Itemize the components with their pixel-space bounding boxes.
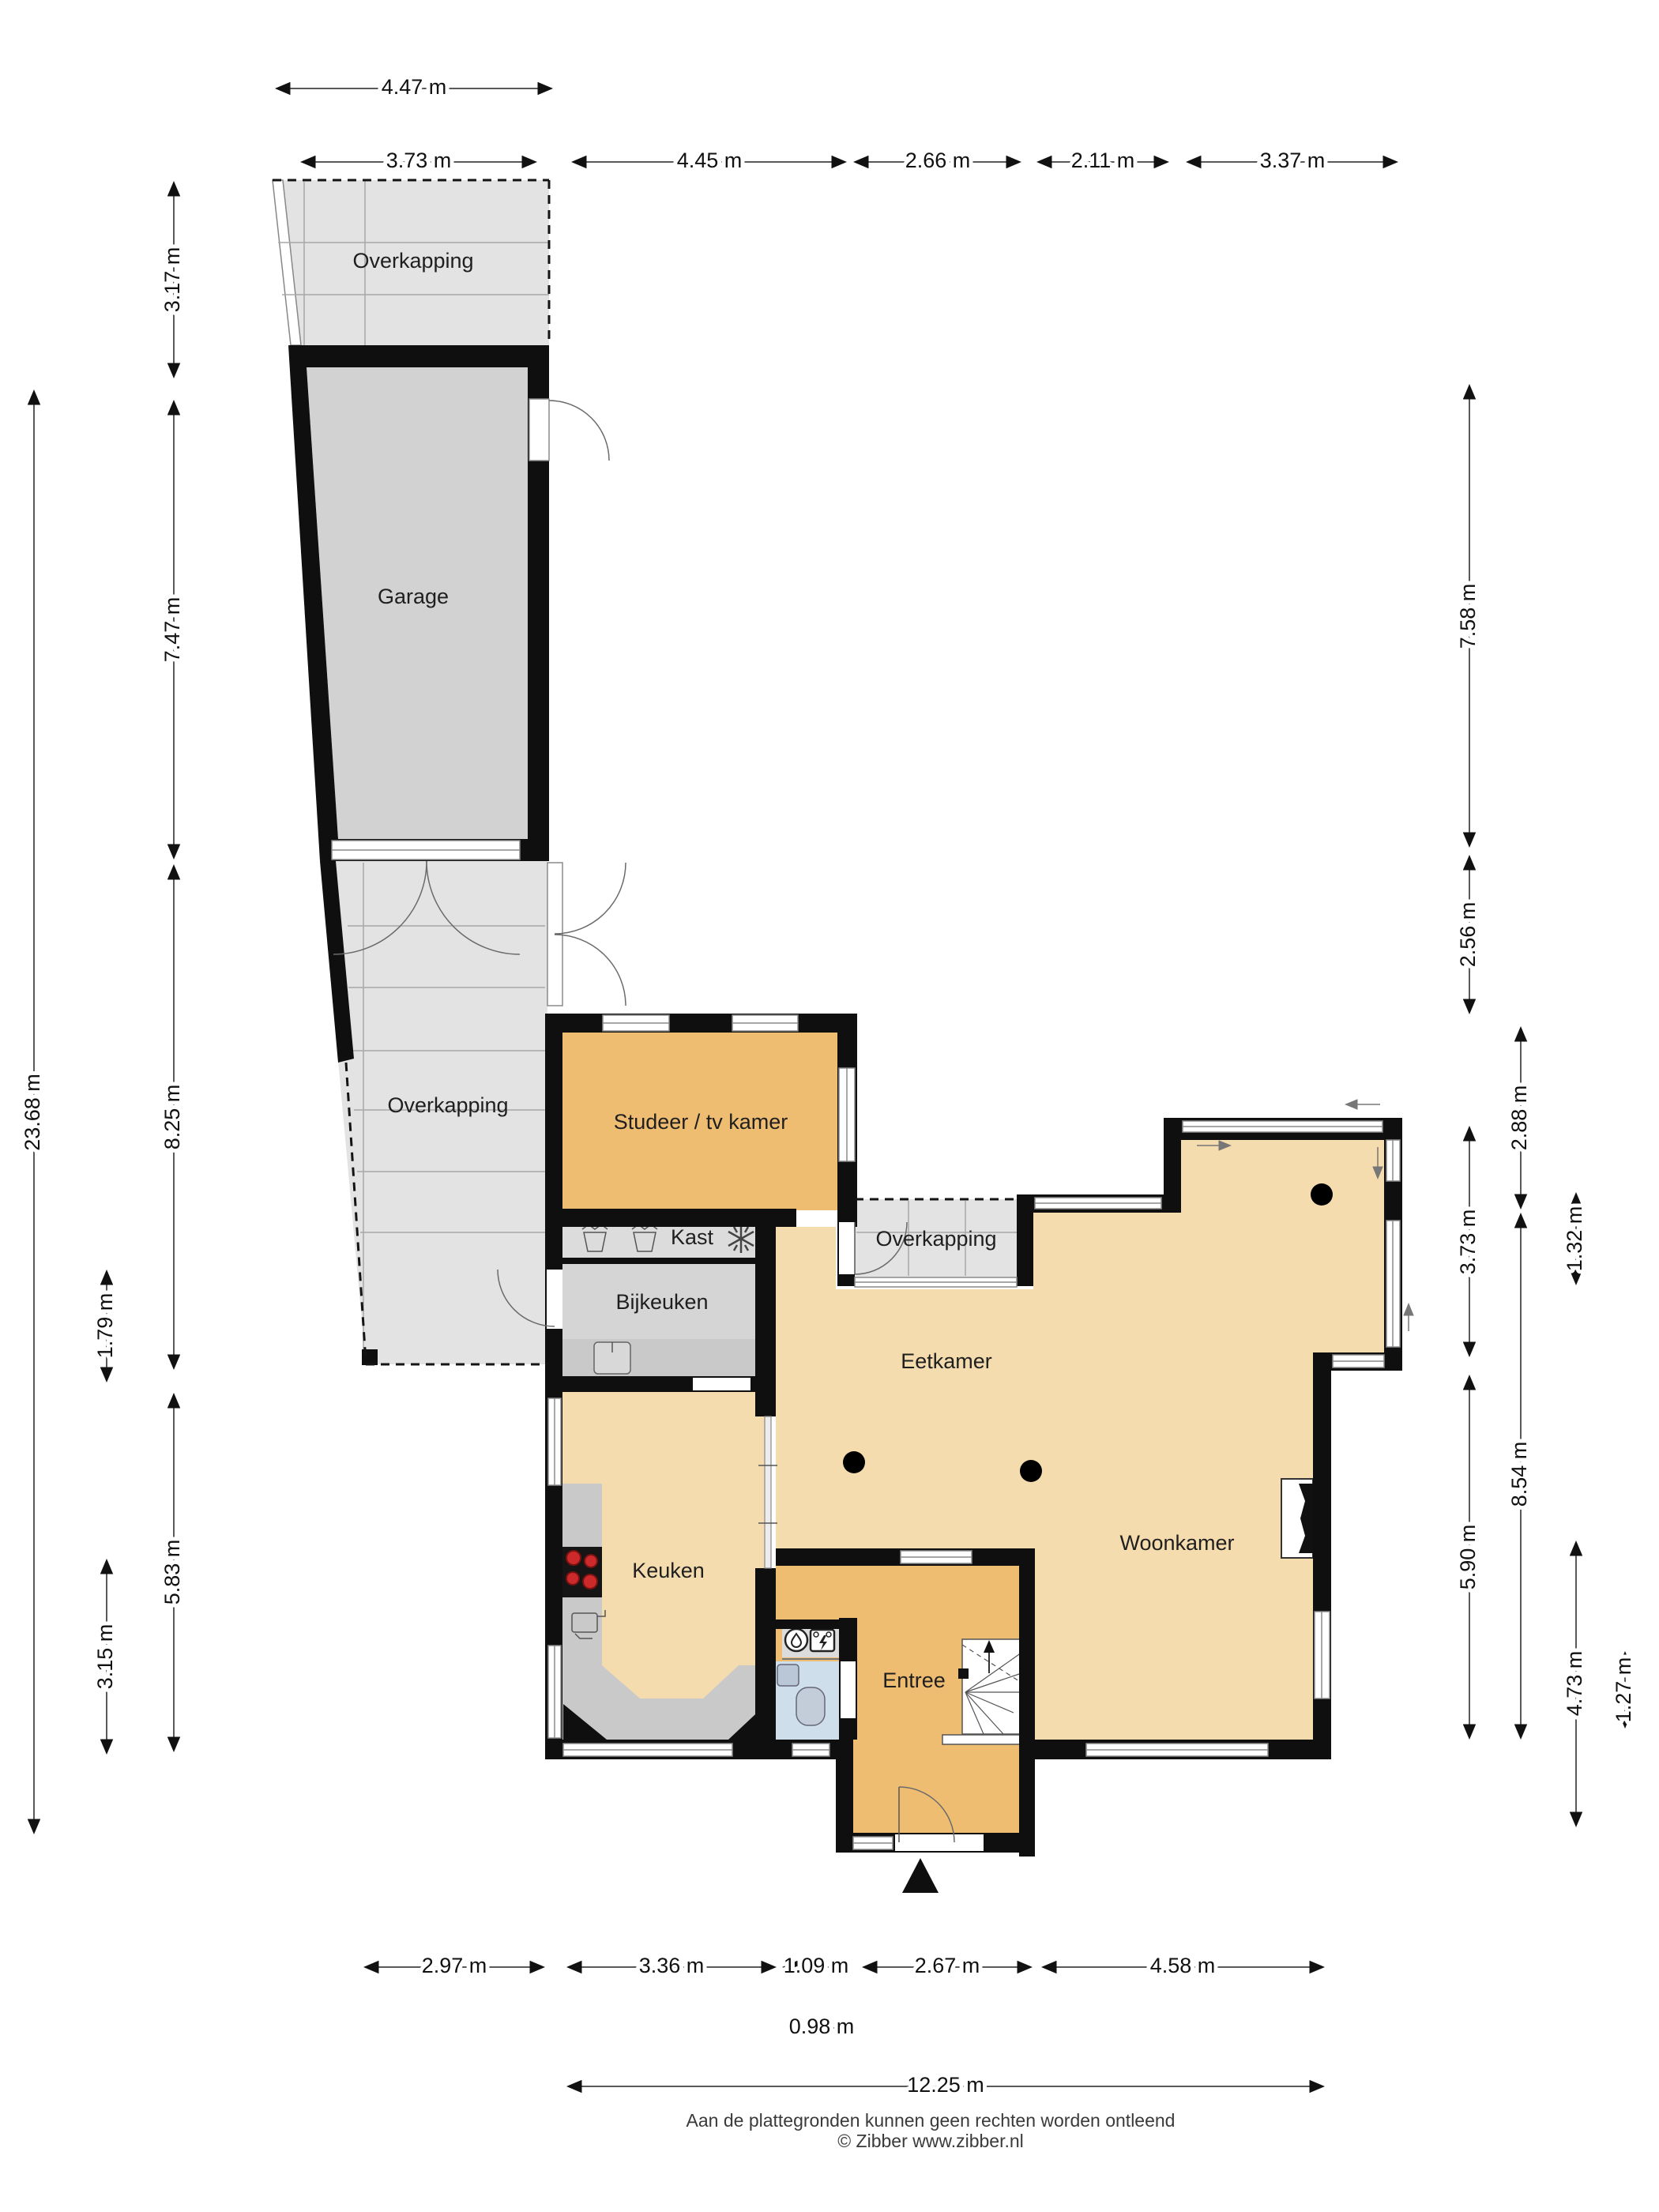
dim-right-256: 2.56 m	[1456, 857, 1480, 1012]
svg-text:1.79 m: 1.79 m	[93, 1293, 117, 1359]
room-label-overkapping-mid: Overkapping	[387, 1093, 508, 1117]
svg-text:3.37 m: 3.37 m	[1260, 149, 1326, 172]
window	[792, 1744, 829, 1756]
window	[855, 1277, 1017, 1287]
fireplace	[1281, 1479, 1313, 1558]
water-heater-icon	[785, 1629, 807, 1651]
dim-left-825: 8.25 m	[160, 867, 184, 1367]
window	[1086, 1744, 1268, 1756]
dim-bottom-297: 2.97 m	[366, 1954, 543, 1977]
dim-bottom-267: 2.67 m	[864, 1954, 1030, 1977]
bijkeuken-counter	[562, 1339, 755, 1376]
svg-text:23.68 m: 23.68 m	[21, 1074, 44, 1151]
svg-text:2.97 m: 2.97 m	[422, 1954, 487, 1977]
floors	[273, 180, 1384, 1835]
window	[1315, 1612, 1330, 1698]
room-label-eetkamer: Eetkamer	[901, 1349, 992, 1373]
electric-meter-icon	[811, 1630, 834, 1651]
dim-left-583: 5.83 m	[160, 1395, 184, 1750]
carport-courtyard-doors	[547, 863, 626, 1006]
svg-text:3.15 m: 3.15 m	[93, 1624, 117, 1690]
room-label-bijkeuken: Bijkeuken	[615, 1290, 708, 1314]
room-label-garage: Garage	[378, 585, 449, 608]
entrance-arrow-icon	[902, 1858, 939, 1893]
toilet-sink	[777, 1665, 799, 1686]
ceiling-light-dot	[1020, 1460, 1042, 1482]
window	[1035, 1198, 1161, 1209]
room-label-entree: Entree	[882, 1668, 946, 1692]
front-door-opening	[895, 1834, 984, 1851]
floorplan-page: Overkapping Garage Overkapping Studeer /…	[0, 0, 1659, 2212]
svg-text:7.58 m: 7.58 m	[1456, 584, 1480, 649]
dim-bottom-098: 0.98 m	[788, 2014, 855, 2038]
window	[1333, 1355, 1384, 1367]
svg-text:0.98 m: 0.98 m	[789, 2014, 855, 2038]
svg-text:5.90 m: 5.90 m	[1456, 1525, 1480, 1590]
floorplan-drawing: Overkapping Garage Overkapping Studeer /…	[0, 0, 1659, 2212]
bijkeuken-door	[547, 1270, 562, 1329]
dim-bottom-109: 1.09 m	[784, 1954, 849, 1977]
room-label-overkapping-top: Overkapping	[352, 249, 473, 273]
svg-text:4.47 m: 4.47 m	[382, 75, 447, 99]
door-opening	[796, 1210, 836, 1225]
glass-partition	[765, 1416, 771, 1568]
svg-text:1.27 m: 1.27 m	[1612, 1657, 1635, 1723]
window	[1386, 1140, 1400, 1181]
svg-text:5.83 m: 5.83 m	[160, 1540, 184, 1605]
window	[839, 1068, 855, 1161]
footer-disclaimer: Aan de plattegronden kunnen geen rechten…	[687, 2110, 1176, 2131]
dim-left-2368: 23.68 m	[21, 392, 44, 1832]
svg-text:2.88 m: 2.88 m	[1507, 1085, 1531, 1151]
svg-text:8.25 m: 8.25 m	[160, 1085, 184, 1150]
dim-top-447: 4.47 m	[277, 75, 551, 99]
window	[1386, 1221, 1400, 1347]
svg-text:1.32 m: 1.32 m	[1563, 1206, 1586, 1272]
dim-right-127: 1.27 m	[1612, 1653, 1635, 1726]
footer: Aan de plattegronden kunnen geen rechten…	[687, 2110, 1176, 2151]
toilet-door	[841, 1661, 856, 1718]
svg-text:4.45 m: 4.45 m	[677, 149, 743, 172]
dim-bottom-336: 3.36 m	[569, 1954, 774, 1977]
svg-text:2.56 m: 2.56 m	[1456, 902, 1480, 968]
dim-bottom-458: 4.58 m	[1044, 1954, 1322, 1977]
room-label-studeer: Studeer / tv kamer	[614, 1110, 788, 1134]
room-label-kast: Kast	[671, 1225, 714, 1249]
svg-text:3.36 m: 3.36 m	[639, 1954, 705, 1977]
dim-right-473: 4.73 m	[1563, 1543, 1586, 1825]
window	[732, 1015, 798, 1031]
room-label-keuken: Keuken	[632, 1559, 705, 1582]
svg-text:8.54 m: 8.54 m	[1507, 1442, 1531, 1507]
dim-top-373: 3.73 m	[303, 149, 535, 172]
terrace-door	[839, 1222, 855, 1274]
svg-text:7.47 m: 7.47 m	[160, 597, 184, 663]
svg-text:3.73 m: 3.73 m	[1456, 1209, 1480, 1275]
dim-top-211: 2.11 m	[1039, 149, 1167, 172]
window	[1183, 1121, 1382, 1132]
dim-top-266: 2.66 m	[856, 149, 1019, 172]
dim-right-758: 7.58 m	[1456, 386, 1480, 845]
garage-side-door	[529, 399, 609, 461]
svg-text:2.67 m: 2.67 m	[915, 1954, 980, 1977]
window	[901, 1551, 972, 1563]
window	[548, 1398, 561, 1485]
svg-text:4.58 m: 4.58 m	[1150, 1954, 1216, 1977]
dim-bottom-1225: 12.25 m	[569, 2073, 1322, 2097]
dim-right-132: 1.32 m	[1563, 1194, 1586, 1283]
dim-left-179: 1.79 m	[93, 1272, 117, 1380]
window	[548, 1646, 561, 1738]
svg-text:2.11 m: 2.11 m	[1071, 149, 1135, 172]
dim-right-854: 8.54 m	[1507, 1215, 1531, 1737]
dim-top-337: 3.37 m	[1188, 149, 1396, 172]
dim-left-317: 3.17 m	[160, 183, 184, 376]
dim-right-590: 5.90 m	[1456, 1377, 1480, 1737]
ceiling-light-dot	[843, 1451, 865, 1473]
room-label-woonkamer: Woonkamer	[1119, 1531, 1234, 1555]
svg-text:3.73 m: 3.73 m	[386, 149, 452, 172]
dim-right-373: 3.73 m	[1456, 1128, 1480, 1355]
svg-text:12.25 m: 12.25 m	[907, 2073, 984, 2097]
dim-right-288: 2.88 m	[1507, 1029, 1531, 1207]
dim-left-747: 7.47 m	[160, 402, 184, 857]
svg-text:3.17 m: 3.17 m	[160, 247, 184, 313]
window	[603, 1015, 669, 1031]
room-label-overkapping-small: Overkapping	[875, 1227, 996, 1251]
svg-text:4.73 m: 4.73 m	[1563, 1651, 1586, 1717]
svg-text:1.09 m: 1.09 m	[784, 1954, 849, 1977]
footer-copyright: © Zibber www.zibber.nl	[837, 2131, 1024, 2151]
window	[563, 1744, 732, 1756]
dim-left-315: 3.15 m	[93, 1561, 117, 1752]
ceiling-light-dot	[1311, 1183, 1333, 1206]
window	[853, 1837, 893, 1849]
toilet-bowl	[796, 1687, 825, 1725]
cooktop-icon	[562, 1547, 602, 1597]
svg-text:2.66 m: 2.66 m	[905, 149, 971, 172]
dim-top-445: 4.45 m	[574, 149, 845, 172]
door-opening	[693, 1378, 750, 1390]
